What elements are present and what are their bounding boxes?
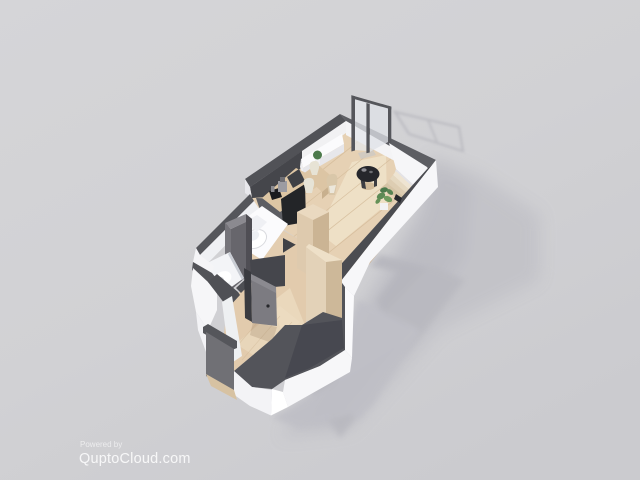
svg-text:Powered by: Powered by (80, 440, 122, 449)
svg-text:QuptoCloud.com: QuptoCloud.com (79, 451, 191, 467)
